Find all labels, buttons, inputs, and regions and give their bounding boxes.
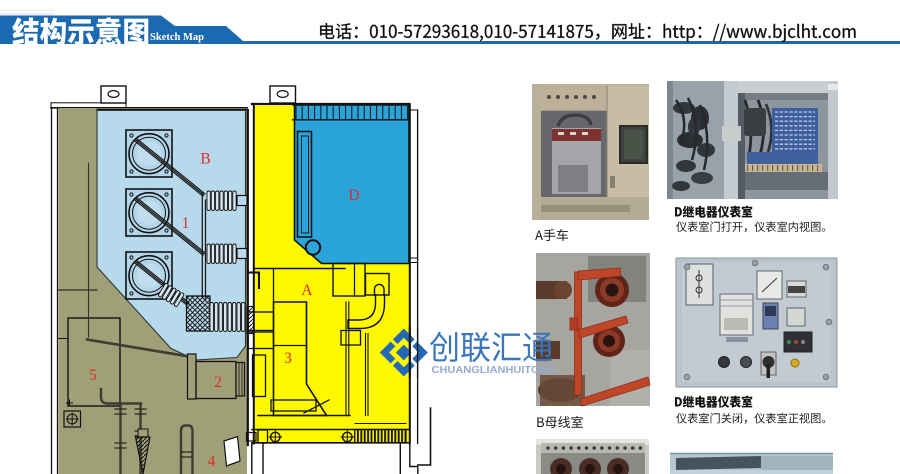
svg-text:Sketch Map: Sketch Map [150,32,204,43]
svg-text:A: A [301,282,313,299]
svg-text:5: 5 [89,367,97,384]
svg-text:4: 4 [208,453,216,470]
svg-text:CHUANGLIANHUITONG: CHUANGLIANHUITONG [432,364,557,376]
svg-text:1: 1 [182,215,190,232]
svg-text:3: 3 [284,350,292,367]
svg-text:D: D [348,187,359,204]
svg-text:2: 2 [214,374,222,391]
svg-text:B: B [200,151,210,168]
